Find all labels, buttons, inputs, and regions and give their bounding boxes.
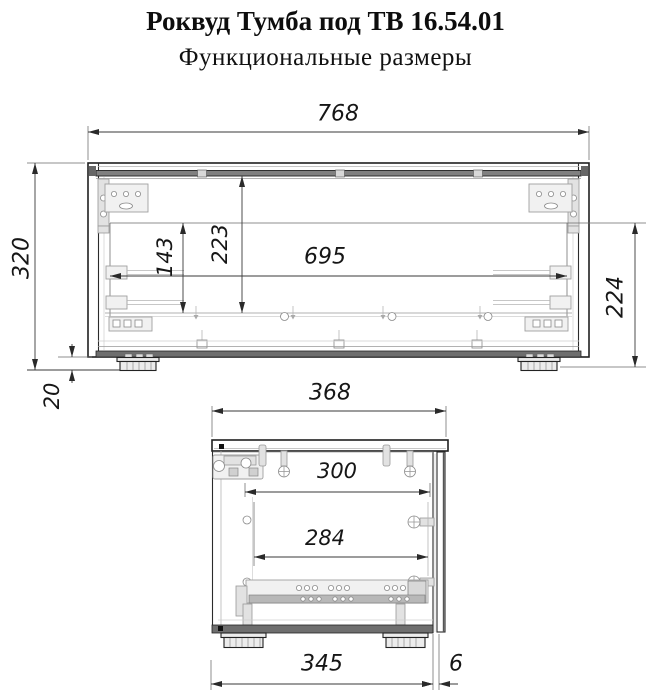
dim-overall-depth: 368 — [309, 381, 351, 406]
dim-niche-width: 695 — [304, 245, 346, 270]
dim-door-offset: 6 — [449, 652, 463, 677]
dim-inner-depth-lower: 284 — [305, 526, 345, 550]
side-hinge-assembly — [213, 455, 263, 479]
dim-niche-height-right: 224 — [604, 276, 629, 318]
front-bottom-clips — [197, 330, 482, 348]
dim-plinth-height: 20 — [40, 383, 64, 410]
dim-inner-height: 223 — [208, 224, 232, 264]
side-view-drawing: 368 300 284 345 6 — [211, 381, 463, 691]
side-bottom-band — [212, 625, 433, 633]
front-right-hinge-plate — [529, 184, 572, 212]
front-view-drawing: 768 320 20 143 223 695 224 — [10, 102, 647, 410]
front-bottom-hardware — [109, 306, 568, 331]
front-left-hinge-plate — [105, 184, 148, 212]
side-left-foot — [221, 633, 266, 648]
side-drawer-slide — [236, 580, 428, 625]
technical-drawing: 768 320 20 143 223 695 224 — [0, 0, 651, 700]
dim-base-depth: 345 — [301, 652, 343, 677]
dim-overall-height: 320 — [10, 237, 35, 279]
side-top-panel — [212, 440, 448, 451]
page: Роквуд Тумба под ТВ 16.54.01 Функциональ… — [0, 0, 651, 700]
front-bottom-band — [96, 351, 581, 357]
side-door-screws — [408, 516, 434, 588]
dim-inner-height-small: 143 — [153, 237, 177, 277]
dim-overall-width: 768 — [317, 102, 359, 127]
side-right-foot — [383, 633, 428, 648]
dim-inner-depth: 300 — [317, 459, 357, 483]
